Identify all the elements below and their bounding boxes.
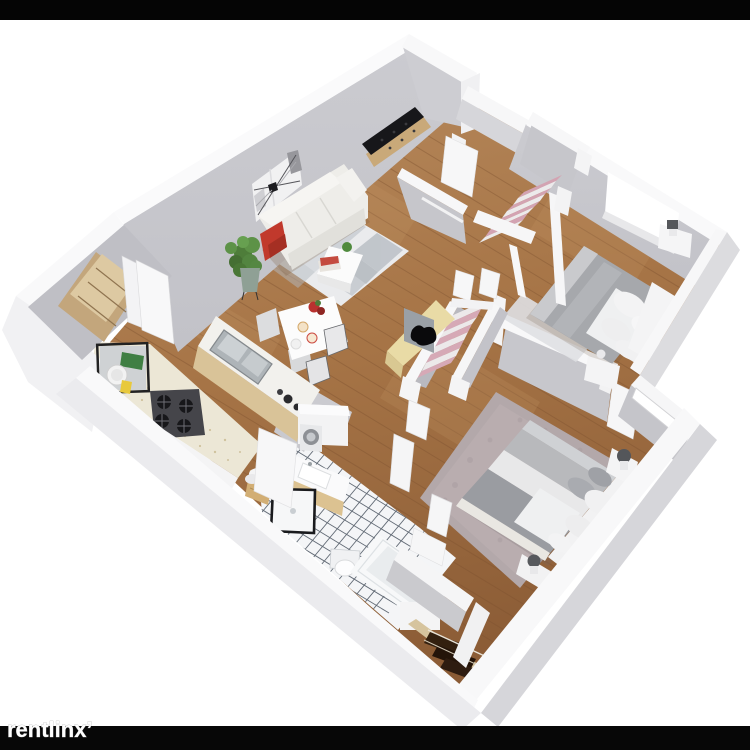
svg-text:rentlinx’: rentlinx’ [7, 717, 93, 742]
